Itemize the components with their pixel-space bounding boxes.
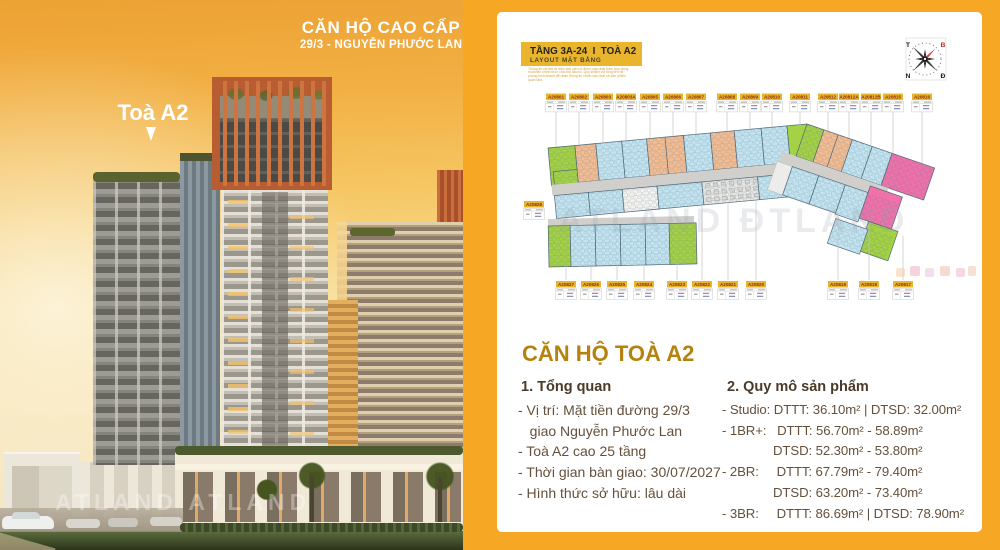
svg-text:A20819: A20819 <box>830 282 847 287</box>
svg-text:A20817: A20817 <box>895 282 912 287</box>
svg-text:A20820: A20820 <box>748 282 765 287</box>
svg-text:A20801: A20801 <box>548 94 565 99</box>
svg-text:A20825: A20825 <box>609 282 626 287</box>
svg-text:A20824: A20824 <box>636 282 653 287</box>
svg-text:A20826: A20826 <box>583 282 600 287</box>
svg-text:A20803: A20803 <box>595 94 612 99</box>
svg-text:A20812A: A20812A <box>839 94 859 99</box>
svg-text:A20809: A20809 <box>742 94 759 99</box>
svg-text:A20822: A20822 <box>694 282 711 287</box>
svg-text:A20807: A20807 <box>688 94 705 99</box>
svg-text:A20812: A20812 <box>820 94 837 99</box>
svg-text:A20828: A20828 <box>526 202 543 207</box>
svg-text:A20811: A20811 <box>792 94 808 99</box>
svg-text:B: B <box>941 42 946 49</box>
svg-text:A20810: A20810 <box>764 94 781 99</box>
svg-text:A20802: A20802 <box>571 94 588 99</box>
svg-text:A20823: A20823 <box>669 282 686 287</box>
svg-text:N: N <box>906 73 911 80</box>
svg-text:A20816: A20816 <box>914 94 931 99</box>
svg-text:A20812B: A20812B <box>861 94 881 99</box>
svg-text:A20808: A20808 <box>719 94 736 99</box>
svg-text:A20821: A20821 <box>720 282 737 287</box>
svg-text:A20806: A20806 <box>665 94 682 99</box>
svg-text:Đ: Đ <box>941 73 946 80</box>
svg-text:A20805: A20805 <box>642 94 659 99</box>
svg-text:A20818: A20818 <box>861 282 878 287</box>
svg-text:ATLAND ĐTLAND: ATLAND ĐTLAND <box>558 202 909 240</box>
svg-text:A20803A: A20803A <box>616 94 636 99</box>
svg-text:A20827: A20827 <box>558 282 575 287</box>
svg-text:A20815: A20815 <box>885 94 902 99</box>
